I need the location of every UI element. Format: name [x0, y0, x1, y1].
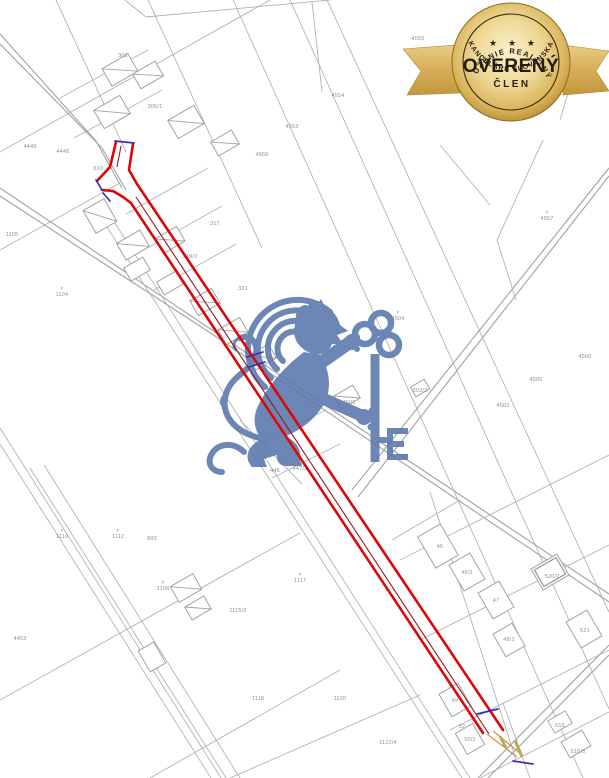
- boundary-line: [44, 465, 240, 778]
- subject-parcel-edge: [129, 144, 503, 730]
- boundary-line: [497, 240, 516, 300]
- parcel-number: 321: [238, 286, 248, 292]
- boundary-line: [140, 206, 222, 252]
- parcel-letter: F: [117, 528, 120, 533]
- survey-mark: [96, 180, 102, 190]
- building: [83, 199, 117, 234]
- parcel-number: 302: [118, 53, 128, 59]
- parcel-number: 1105: [6, 232, 19, 238]
- building: [211, 130, 240, 156]
- parcel-number: 4449: [23, 144, 36, 150]
- subject-parcel-inner-line: [117, 146, 121, 167]
- parcel-number: 46/2: [461, 570, 473, 576]
- boundary-line: [0, 533, 300, 700]
- building: [185, 596, 212, 620]
- survey-mark: [115, 141, 134, 143]
- parcel-number: 4553: [285, 124, 298, 130]
- parcel-number: 305/1: [148, 104, 163, 110]
- building: [170, 574, 202, 603]
- parcel-number: 4453: [13, 636, 26, 642]
- parcel-letter: F: [397, 310, 400, 315]
- highlighted-parcel-outline: [96, 141, 533, 764]
- boundary-line: [478, 645, 609, 778]
- building: [94, 95, 130, 128]
- parcel-number: 48/1: [503, 637, 515, 643]
- boundary-line: [148, 0, 262, 248]
- parcel-number: 1122/4: [379, 740, 397, 746]
- boundary-line: [488, 655, 609, 778]
- parcel-number: 1108: [157, 586, 170, 592]
- building: [132, 61, 163, 89]
- parcel-number: 1115/2: [229, 608, 246, 614]
- parcel-number: 49: [452, 698, 459, 704]
- parcel-letter: F: [546, 210, 549, 215]
- parcel-letter: F: [61, 528, 64, 533]
- badge-member-text: ČLEN: [493, 77, 530, 90]
- parcel-letter: F: [61, 286, 64, 291]
- building-outline: [124, 257, 151, 281]
- parcel-number: 4560: [578, 354, 591, 360]
- boundary-line: [104, 206, 470, 778]
- badge-stars: ★ ★ ★: [489, 39, 539, 49]
- parcel-number: 1112: [112, 534, 124, 540]
- parcel-letter: F: [162, 580, 165, 585]
- building: [138, 642, 166, 672]
- boundary-line: [0, 44, 102, 148]
- verified-member-badge: ZDRUŽENIE REALITNÝCH ★ ★ ★ OVERENÝ ČLEN …: [399, 0, 609, 132]
- parcel-number: 1120: [334, 696, 347, 702]
- cadastral-map-image: 4449444545534550455445554557F45604502450…: [0, 0, 609, 778]
- building-outline: [531, 554, 569, 590]
- parcel-number: 50/2: [464, 737, 476, 743]
- subject-parcel-inner-line: [136, 197, 489, 734]
- parcel-number: 893: [147, 536, 157, 542]
- parcel-number: 503/2: [413, 388, 428, 394]
- parcel-number: 446: [270, 468, 280, 474]
- parcel-number: 310: [93, 166, 103, 172]
- parcel-number: 4557: [540, 216, 553, 222]
- survey-mark: [513, 761, 533, 764]
- boundary-line: [126, 168, 208, 214]
- parcel-number: 4550: [255, 152, 268, 158]
- survey-mark: [477, 709, 498, 714]
- boundary-line: [125, 0, 146, 17]
- building: [124, 257, 151, 281]
- boundary-line: [96, 210, 462, 778]
- parcel-number: 4554: [331, 93, 344, 99]
- boundary-line: [497, 140, 543, 240]
- parcel-number: 4505: [529, 377, 542, 383]
- parcel-number: 45: [437, 544, 444, 550]
- parcel-number: 317: [210, 221, 220, 227]
- parcel-end-bar: [515, 740, 522, 757]
- boundary-line: [150, 670, 340, 778]
- key-watermark-icon: [355, 313, 408, 462]
- building: [117, 230, 150, 260]
- boundary-line: [146, 0, 330, 17]
- parcel-number: 4502: [496, 403, 509, 409]
- parcel-number: 515: [555, 723, 565, 729]
- boundary-line: [0, 444, 211, 778]
- parcel-number: 520/2: [545, 574, 560, 580]
- boundary-line: [230, 695, 420, 778]
- boundary-line: [440, 145, 490, 205]
- boundary-line: [0, 428, 221, 778]
- parcel-number: 1117: [294, 578, 306, 584]
- parcel-number: 52: [459, 724, 466, 730]
- building: [531, 554, 569, 590]
- building-outline: [138, 642, 166, 672]
- boundary-line: [312, 2, 322, 92]
- parcel-number: 1118: [252, 696, 264, 702]
- parcel-number: 516/3: [571, 749, 586, 755]
- parcel-number: 521: [580, 628, 590, 634]
- boundary-line: [96, 141, 122, 188]
- boundary-line: [30, 468, 226, 778]
- parcel-letter: F: [299, 572, 302, 577]
- parcel-number: 4445: [56, 149, 69, 155]
- parcel-number: 1104: [56, 292, 69, 298]
- parcel-number: 1110: [56, 534, 68, 540]
- parcel-number: 47: [493, 598, 500, 604]
